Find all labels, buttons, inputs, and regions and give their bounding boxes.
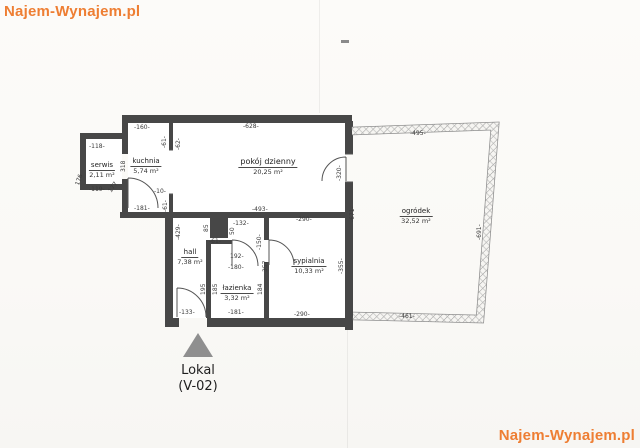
dim-label: 318	[120, 161, 127, 172]
dim-label: 177	[107, 181, 119, 194]
dim-label: -671-	[349, 206, 356, 222]
room-area: 7,38 m²	[177, 258, 202, 267]
dim-label: -61-	[161, 136, 168, 148]
dim-label: 357	[262, 261, 269, 272]
dim-label: -118-	[89, 143, 105, 150]
room-area: 20,25 m²	[238, 168, 297, 177]
room-label-sypialnia: sypialnia 10,33 m²	[291, 248, 326, 276]
dim-label: -493-	[252, 206, 268, 213]
dim-label: 192-	[230, 253, 244, 260]
dim-label: -628-	[243, 123, 259, 130]
room-label-ogrodek: ogródek 32,52 m²	[400, 198, 433, 226]
dim-label: 50	[229, 227, 236, 235]
room-name: pokój dzienny	[238, 158, 297, 168]
room-label-kuchnia: kuchnia 5,74 m²	[130, 148, 161, 176]
room-name: ogródek	[400, 207, 433, 217]
dim-label: -290-	[296, 216, 312, 223]
dim-label: 184	[257, 284, 264, 295]
dim-label: -495-	[410, 130, 426, 137]
dim-label: -355-	[338, 258, 345, 274]
room-name: kuchnia	[130, 157, 161, 167]
room-area: 10,33 m²	[291, 267, 326, 276]
dim-label: -119-	[89, 186, 105, 193]
room-label-pokoj-dzienny: pokój dzienny 20,25 m²	[238, 149, 297, 177]
dim-label: -61-	[209, 238, 221, 245]
room-name: serwis	[89, 161, 115, 171]
dim-label: -290-	[294, 311, 310, 318]
dim-label: -429-	[175, 224, 182, 240]
room-area: 3,32 m²	[221, 294, 254, 303]
room-label-hall: hall 7,38 m²	[177, 239, 202, 267]
lokal-marker-triangle-icon	[183, 333, 213, 357]
dim-label: -150-	[256, 234, 263, 250]
room-area: 5,74 m²	[130, 167, 161, 176]
room-name: hall	[182, 248, 199, 258]
dim-label: -62-	[175, 138, 182, 150]
lokal-label: Lokal	[158, 363, 238, 379]
room-name: łazienka	[221, 284, 254, 294]
dim-label: 185	[212, 284, 219, 295]
dim-label: 195	[200, 284, 207, 295]
room-label-serwis: serwis 2,11 m²	[89, 152, 115, 180]
dim-label: -160-	[134, 124, 150, 131]
room-area: 2,11 m²	[89, 171, 115, 180]
lokal-marker: Lokal (V-02)	[158, 333, 238, 394]
dim-label: -320-	[336, 165, 343, 181]
dim-label: -691-	[476, 224, 483, 240]
room-name: sypialnia	[291, 257, 326, 267]
room-area: 32,52 m²	[400, 217, 433, 226]
dim-label: -181-	[228, 309, 244, 316]
dim-label: -461-	[399, 313, 415, 320]
watermark-top-left: Najem-Wynajem.pl	[4, 3, 140, 20]
dim-label: -180-	[228, 264, 244, 271]
lokal-number: (V-02)	[158, 379, 238, 394]
room-label-lazienka: łazienka 3,32 m²	[221, 275, 254, 303]
dim-label: 176	[74, 173, 84, 186]
dim-label: -181-	[134, 205, 150, 212]
watermark-bottom-right: Najem-Wynajem.pl	[499, 427, 635, 444]
dim-label: -132-	[233, 220, 249, 227]
dim-label: -61-	[162, 200, 169, 212]
dim-label: 85	[203, 224, 210, 232]
dim-label: -133-	[179, 309, 195, 316]
dim-label: -10-	[154, 188, 166, 195]
dimension-layer: -118- -119- 176 177 318 -160- -61- -62- …	[0, 0, 640, 448]
